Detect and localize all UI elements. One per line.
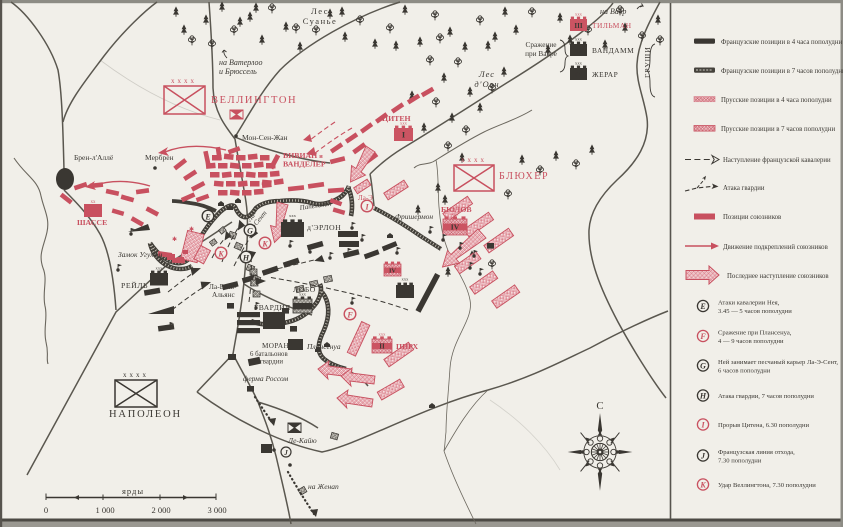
svg-text:Альянс: Альянс (212, 290, 235, 299)
svg-text:Прорыв Цитена, 6.30 пополудни: Прорыв Цитена, 6.30 пополудни (718, 422, 810, 429)
svg-text:ШАССЕ: ШАССЕ (77, 218, 107, 227)
svg-text:д'Оэн: д'Оэн (474, 79, 499, 89)
svg-text:Мербрен: Мербрен (145, 153, 174, 162)
svg-text:БЛЮХЕР: БЛЮХЕР (499, 171, 549, 182)
svg-text:✱: ✱ (172, 236, 177, 243)
svg-text:Удар Веллингтона, 7.30 пополуд: Удар Веллингтона, 7.30 пополудни (718, 482, 816, 489)
svg-text:Сражение: Сражение (526, 40, 557, 49)
svg-text:xxxx: xxxx (171, 77, 197, 85)
svg-text:Фришермон: Фришермон (395, 212, 433, 221)
svg-text:Французские позиции в 4 часа п: Французские позиции в 4 часа пополудни (721, 39, 842, 46)
svg-text:VI: VI (401, 289, 409, 297)
svg-text:ВАНДЕЛЕР: ВАНДЕЛЕР (283, 160, 326, 169)
svg-text:Атака гвардии, 7 часов пополуд: Атака гвардии, 7 часов пополудни (718, 393, 814, 400)
svg-text:на Женап: на Женап (308, 482, 339, 491)
svg-text:III: III (574, 22, 582, 30)
svg-text:Позиции союзников: Позиции союзников (723, 214, 781, 221)
svg-text:H: H (699, 392, 707, 401)
svg-text:K: K (261, 239, 268, 248)
svg-text:E: E (204, 212, 210, 221)
svg-text:ярды: ярды (122, 486, 144, 496)
svg-text:Лес: Лес (478, 69, 495, 79)
svg-text:БЮЛОВ: БЮЛОВ (441, 205, 472, 214)
svg-text:6 батальонов: 6 батальонов (250, 351, 288, 358)
svg-text:F: F (699, 332, 706, 341)
svg-text:ЦИТЕН: ЦИТЕН (382, 114, 411, 123)
svg-text:гвардии: гвардии (260, 359, 283, 366)
svg-text:Атака гвардии: Атака гвардии (723, 185, 765, 192)
svg-text:Прусские позиции в 7 часов поп: Прусские позиции в 7 часов пополудни (721, 126, 835, 133)
svg-text:IV: IV (575, 71, 583, 79)
svg-text:E: E (699, 302, 705, 311)
svg-text:Мон-Сен-Жан: Мон-Сен-Жан (242, 133, 288, 142)
svg-text:xxxx: xxxx (461, 156, 487, 164)
svg-text:Французские позиции в 7 часов: Французские позиции в 7 часов пополудни (721, 68, 843, 75)
svg-text:xxxx: xxxx (123, 371, 149, 379)
svg-text:7.30 пополудни: 7.30 пополудни (718, 458, 762, 465)
svg-text:МОРАН: МОРАН (262, 342, 289, 350)
svg-text:Движение подкреплений союзнико: Движение подкреплений союзников (723, 244, 828, 251)
svg-text:3 000: 3 000 (207, 505, 226, 515)
svg-text:ВЕЛЛИНГТОН: ВЕЛЛИНГТОН (211, 95, 297, 106)
svg-text:НАПОЛЕОН: НАПОЛЕОН (109, 409, 182, 420)
svg-text:J: J (283, 449, 288, 457)
svg-text:С: С (596, 400, 603, 412)
svg-text:G: G (700, 362, 706, 371)
svg-text:Замок Угумон: Замок Угумон (118, 250, 163, 259)
svg-text:IV: IV (451, 223, 460, 232)
svg-text:2 000: 2 000 (151, 505, 170, 515)
svg-text:д'ЭРЛОН: д'ЭРЛОН (307, 223, 341, 232)
svg-text:Атаки кавалерии Нея,: Атаки кавалерии Нея, (718, 300, 780, 307)
svg-text:xxx: xxx (575, 12, 583, 17)
svg-text:K: K (217, 249, 224, 258)
svg-text:и Брюссель: и Брюссель (219, 67, 257, 76)
svg-text:Лес: Лес (311, 6, 329, 16)
svg-text:ферма Россом: ферма Россом (243, 374, 288, 383)
svg-text:РЕЙЛЬ: РЕЙЛЬ (121, 281, 148, 290)
svg-text:ПИРХ: ПИРХ (396, 342, 418, 351)
svg-text:F: F (346, 310, 353, 319)
svg-text:Французская линия отхода,: Французская линия отхода, (718, 449, 795, 456)
svg-text:ЖЕРАР: ЖЕРАР (592, 70, 618, 79)
svg-text:Ней занимает песчаный карьер Л: Ней занимает песчаный карьер Ла-Э-Сент, (718, 359, 838, 366)
svg-text:4 — 9 часов пополудни: 4 — 9 часов пополудни (718, 338, 784, 345)
svg-text:III: III (574, 47, 582, 55)
svg-text:0: 0 (44, 505, 48, 515)
svg-text:Наступление французской кавале: Наступление французской кавалерии (723, 157, 831, 164)
svg-text:ТИЛЬМАН: ТИЛЬМАН (592, 21, 632, 30)
svg-text:G: G (247, 226, 253, 235)
svg-text:xx: xx (91, 200, 97, 205)
svg-text:II: II (156, 276, 162, 284)
svg-text:Прусские позиции в 4 часа попо: Прусские позиции в 4 часа пополудни (721, 97, 832, 104)
svg-text:ГВАРДИЯ: ГВАРДИЯ (254, 303, 291, 312)
svg-text:Суанье: Суанье (303, 16, 338, 26)
svg-text:VI: VI (299, 303, 307, 310)
svg-text:на Ватерлоо: на Ватерлоо (219, 58, 262, 67)
svg-text:на Вавр: на Вавр (600, 7, 626, 16)
svg-text:при Вавре: при Вавре (525, 49, 557, 58)
svg-text:I: I (291, 226, 295, 236)
svg-text:1 000: 1 000 (95, 505, 114, 515)
svg-text:xxx: xxx (289, 213, 297, 218)
svg-text:xxx: xxx (156, 266, 164, 271)
svg-text:xxx: xxx (575, 61, 583, 66)
svg-text:ЛОБО: ЛОБО (293, 285, 316, 294)
svg-text:3.45 — 5 часов пополудни: 3.45 — 5 часов пополудни (718, 308, 792, 315)
svg-text:Ле-Кайю: Ле-Кайю (287, 436, 317, 445)
svg-text:ВАНДАММ: ВАНДАММ (592, 46, 634, 55)
svg-text:6 часов пополудни: 6 часов пополудни (718, 368, 771, 375)
svg-text:xxx: xxx (379, 331, 387, 336)
svg-text:IV: IV (389, 267, 396, 274)
svg-text:✱: ✱ (189, 226, 194, 233)
svg-text:xxx: xxx (402, 277, 410, 282)
svg-text:K: K (699, 481, 706, 490)
svg-text:Последнее наступление союзнико: Последнее наступление союзников (727, 273, 829, 280)
svg-text:Брен-л'Аллё: Брен-л'Аллё (74, 153, 114, 162)
svg-text:Сражение при Плансенуа,: Сражение при Плансенуа, (718, 330, 792, 337)
svg-text:II: II (379, 342, 385, 350)
svg-text:I: I (402, 131, 405, 140)
svg-text:H: H (242, 253, 250, 262)
svg-text:Плансенуа: Плансенуа (306, 342, 341, 351)
svg-text:xxx: xxx (575, 37, 583, 42)
